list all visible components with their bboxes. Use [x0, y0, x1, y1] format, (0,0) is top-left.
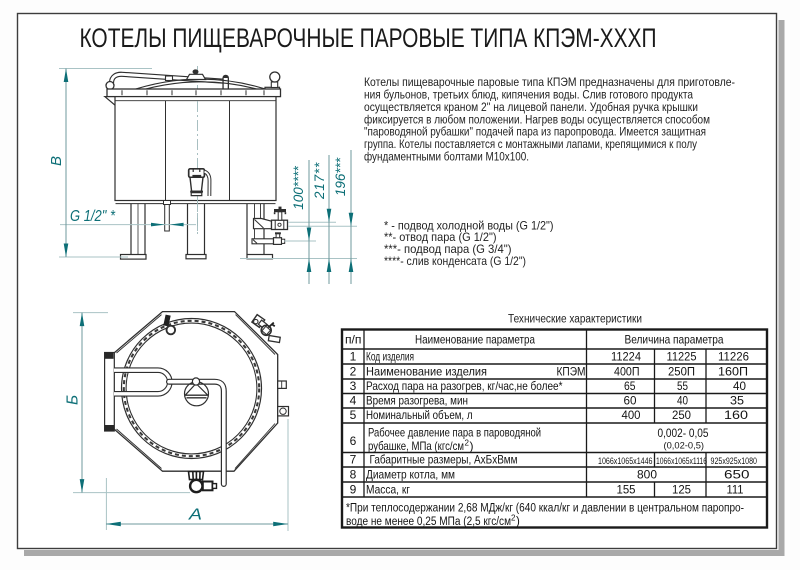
- svg-text:п/п: п/п: [345, 333, 362, 347]
- svg-text:Код изделия: Код изделия: [366, 350, 414, 364]
- svg-text:Технические характеристики: Технические характеристики: [508, 314, 642, 326]
- svg-text:40: 40: [677, 394, 688, 408]
- svg-text:9: 9: [350, 483, 357, 497]
- svg-text:Рабочее давление пара в парово: Рабочее давление пара в пароводяной: [368, 426, 541, 440]
- svg-text:4: 4: [350, 394, 357, 408]
- svg-text:65: 65: [624, 379, 636, 393]
- svg-text:3: 3: [350, 379, 357, 393]
- svg-text:6: 6: [350, 434, 357, 448]
- svg-text:100****: 100****: [291, 165, 306, 209]
- svg-text:160П: 160П: [718, 365, 748, 379]
- svg-text:125: 125: [672, 483, 691, 497]
- svg-text:1: 1: [350, 350, 357, 364]
- svg-text:650: 650: [724, 468, 750, 482]
- svg-text:11225: 11225: [667, 350, 697, 364]
- svg-text:Масса, кг: Масса, кг: [366, 483, 411, 497]
- svg-text:****- слив конденсата (G 1/2": ****- слив конденсата (G 1/2"): [384, 255, 526, 268]
- svg-text:250П: 250П: [668, 365, 695, 379]
- svg-text:Номинальный объем, л: Номинальный объем, л: [366, 408, 473, 422]
- svg-text:400П: 400П: [614, 365, 640, 379]
- svg-text:35: 35: [730, 394, 744, 408]
- svg-text:11224: 11224: [611, 350, 641, 364]
- svg-text:рубашке, МПа (кгс/см: рубашке, МПа (кгс/см: [368, 439, 464, 453]
- svg-text:B: B: [48, 156, 65, 166]
- svg-text:11226: 11226: [718, 350, 749, 364]
- svg-text:5: 5: [350, 408, 357, 422]
- svg-text:): ): [470, 439, 474, 453]
- svg-text:1066х1065х1446: 1066х1065х1446: [598, 456, 653, 466]
- svg-text:Наименование параметра: Наименование параметра: [415, 333, 535, 347]
- svg-text:160: 160: [724, 408, 748, 422]
- svg-text:8: 8: [350, 468, 357, 482]
- svg-text:А: А: [188, 507, 202, 524]
- svg-text:800: 800: [637, 468, 657, 482]
- svg-text:Время разогрева, мин: Время разогрева, мин: [366, 394, 468, 408]
- svg-text:0,002- 0,05: 0,002- 0,05: [658, 426, 709, 440]
- svg-text:воде не менее 0,25 МПа (2,5 кг: воде не менее 0,25 МПа (2,5 кгс/см: [346, 516, 511, 528]
- svg-text:Диаметр котла, мм: Диаметр котла, мм: [366, 468, 455, 482]
- svg-text:2: 2: [350, 365, 357, 379]
- svg-text:): ): [516, 516, 520, 528]
- svg-text:фундаментными болтами М10х100.: фундаментными болтами М10х100.: [364, 149, 529, 163]
- svg-text:Наименование изделия: Наименование изделия: [366, 365, 487, 379]
- svg-text:Величина параметра: Величина параметра: [625, 333, 724, 347]
- svg-text:Расход пара на разогрев, кг/ча: Расход пара на разогрев, кг/час,не более…: [366, 379, 563, 393]
- svg-text:40: 40: [733, 379, 746, 393]
- svg-text:250: 250: [672, 408, 691, 422]
- svg-text:217**: 217**: [312, 162, 327, 200]
- svg-text:(0,02-0,5): (0,02-0,5): [664, 441, 705, 452]
- svg-text:Габаритные размеры, АхБхВмм: Габаритные размеры, АхБхВмм: [370, 453, 518, 467]
- svg-text:Б: Б: [65, 395, 82, 405]
- svg-text:КОТЕЛЫ ПИЩЕВАРОЧНЫЕ ПАРОВЫЕ ТИ: КОТЕЛЫ ПИЩЕВАРОЧНЫЕ ПАРОВЫЕ ТИПА КПЭМ-ХХ…: [80, 23, 657, 53]
- svg-text:400: 400: [622, 408, 641, 422]
- svg-text:60: 60: [624, 394, 637, 408]
- svg-text:7: 7: [350, 453, 357, 467]
- svg-text:155: 155: [617, 483, 636, 497]
- svg-text:1066х1065х1116: 1066х1065х1116: [656, 456, 707, 466]
- svg-text:196***: 196***: [333, 157, 348, 196]
- svg-text:КПЭМ: КПЭМ: [557, 365, 586, 379]
- svg-text:925х925х1080: 925х925х1080: [711, 456, 758, 466]
- svg-text:*При теплосодержании 2,68 МДж/: *При теплосодержании 2,68 МДж/кг (640 кк…: [346, 503, 744, 515]
- svg-text:55: 55: [677, 379, 688, 393]
- svg-text:G 1/2" *: G 1/2" *: [70, 208, 116, 225]
- svg-text:111: 111: [727, 483, 744, 497]
